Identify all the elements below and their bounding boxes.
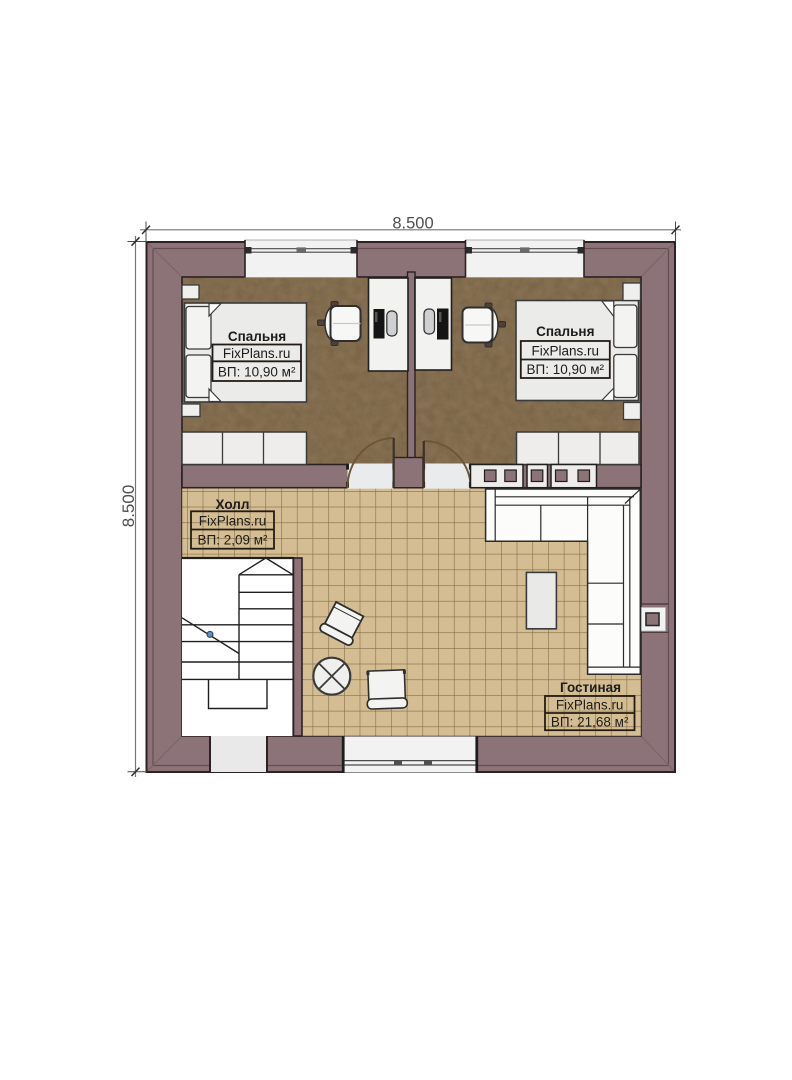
svg-text:8.500: 8.500 (392, 214, 433, 232)
svg-text:ВП: 10,90 м²: ВП: 10,90 м² (527, 362, 605, 377)
svg-text:8.500: 8.500 (119, 485, 138, 528)
svg-text:ВП: 10,90 м²: ВП: 10,90 м² (218, 365, 296, 380)
svg-text:FixPlans.ru: FixPlans.ru (532, 344, 600, 359)
svg-text:Гостиная: Гостиная (560, 680, 621, 695)
svg-text:FixPlans.ru: FixPlans.ru (556, 698, 624, 713)
svg-text:Спальня: Спальня (536, 324, 594, 339)
svg-text:ВП: 21,68 м²: ВП: 21,68 м² (551, 715, 629, 730)
svg-text:ВП: 2,09 м²: ВП: 2,09 м² (197, 533, 268, 548)
svg-text:Холл: Холл (216, 497, 250, 512)
svg-text:FixPlans.ru: FixPlans.ru (223, 346, 291, 361)
svg-text:FixPlans.ru: FixPlans.ru (199, 514, 267, 529)
svg-text:Спальня: Спальня (228, 329, 286, 344)
